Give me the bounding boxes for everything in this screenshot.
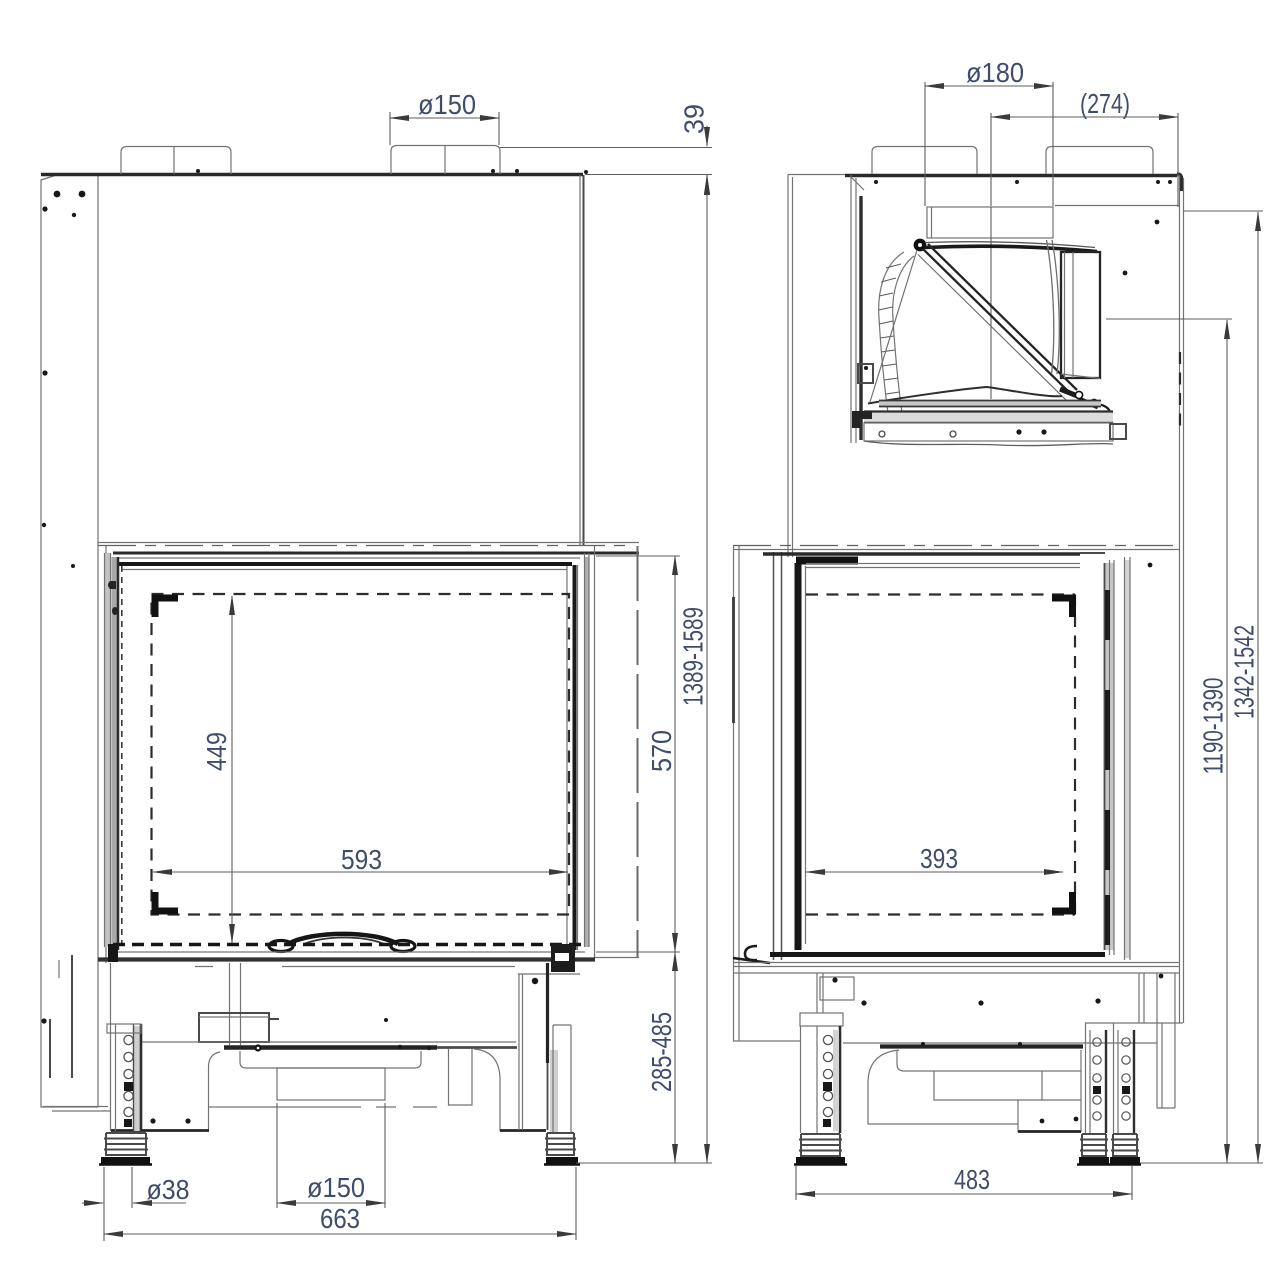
svg-text:593: 593 bbox=[341, 844, 382, 875]
svg-text:663: 663 bbox=[320, 1203, 360, 1234]
svg-text:570: 570 bbox=[646, 730, 677, 772]
svg-text:449: 449 bbox=[201, 732, 232, 771]
svg-text:ø180: ø180 bbox=[966, 57, 1024, 88]
svg-text:483: 483 bbox=[954, 1164, 990, 1195]
svg-text:(274): (274) bbox=[1080, 88, 1130, 119]
svg-text:1342-1542: 1342-1542 bbox=[1229, 625, 1260, 719]
svg-text:ø150: ø150 bbox=[418, 89, 476, 120]
svg-text:ø38: ø38 bbox=[147, 1174, 190, 1205]
svg-text:393: 393 bbox=[920, 843, 958, 874]
svg-text:ø150: ø150 bbox=[307, 1172, 365, 1203]
svg-text:1190-1390: 1190-1390 bbox=[1198, 678, 1229, 775]
svg-text:1389-1589: 1389-1589 bbox=[678, 607, 709, 706]
svg-text:285-485: 285-485 bbox=[646, 1012, 677, 1092]
svg-text:39: 39 bbox=[679, 104, 710, 134]
